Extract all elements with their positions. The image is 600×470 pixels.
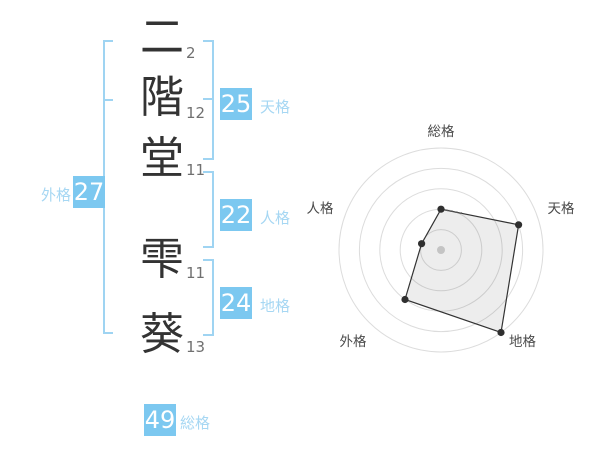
soukaku-value-badge: 49 — [144, 404, 176, 436]
name-char-2: 階 — [139, 75, 185, 121]
radar-axis-label: 地格 — [509, 334, 537, 350]
radar-axis-label: 人格 — [307, 201, 334, 217]
soukaku-label: 総格 — [180, 412, 210, 433]
radar-vertex-dot — [515, 221, 522, 228]
fortune-radar-chart: 総格天格地格外格人格 — [300, 110, 590, 365]
name-fortune-result-panel: 二 階 堂 雫 葵 2 12 11 11 13 25 天格 22 人格 24 地… — [0, 0, 600, 470]
stroke-count-2: 12 — [186, 104, 208, 122]
radar-vertex-dot — [437, 206, 444, 213]
name-char-4: 雫 — [139, 237, 185, 283]
chikaku-value-badge: 24 — [220, 287, 252, 319]
radar-axis-label: 天格 — [548, 201, 576, 217]
chikaku-label: 地格 — [260, 295, 290, 316]
radar-axis-label: 外格 — [340, 334, 367, 350]
radar-polygon — [405, 209, 519, 332]
name-char-3: 堂 — [139, 136, 185, 182]
name-char-1: 二 — [139, 15, 185, 61]
stroke-count-4: 11 — [186, 264, 208, 282]
stroke-count-5: 13 — [186, 338, 208, 356]
gaikaku-label: 外格 — [41, 184, 71, 205]
jinkaku-value-badge: 22 — [220, 199, 252, 231]
radar-axis-label: 総格 — [428, 124, 455, 140]
radar-center-dot — [437, 246, 445, 254]
stroke-count-3: 11 — [186, 161, 208, 179]
stroke-count-1: 2 — [186, 44, 208, 62]
gaikaku-value-badge: 27 — [73, 176, 105, 208]
tenkaku-label: 天格 — [260, 96, 290, 117]
name-char-5: 葵 — [139, 312, 185, 358]
radar-vertex-dot — [497, 329, 504, 336]
radar-vertex-dot — [401, 296, 408, 303]
jinkaku-label: 人格 — [260, 207, 290, 228]
tenkaku-value-badge: 25 — [220, 88, 252, 120]
radar-vertex-dot — [418, 240, 425, 247]
